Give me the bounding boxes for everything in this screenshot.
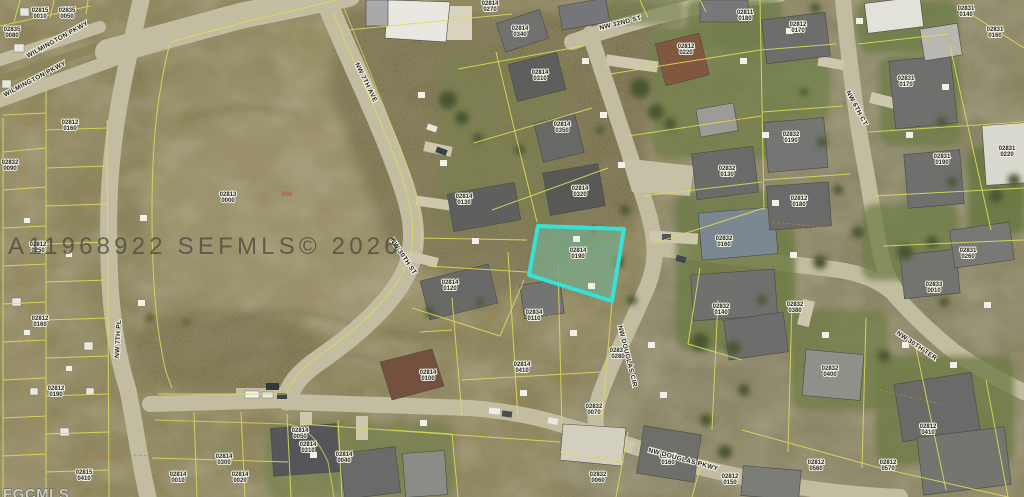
svg-text:0140: 0140: [714, 310, 728, 316]
svg-text:0260: 0260: [961, 254, 975, 260]
svg-text:0410: 0410: [515, 368, 529, 374]
svg-text:0050: 0050: [60, 14, 74, 20]
svg-text:0410: 0410: [921, 430, 935, 436]
svg-text:0130: 0130: [457, 200, 471, 206]
svg-text:0380: 0380: [788, 308, 802, 314]
svg-text:0140: 0140: [959, 12, 973, 18]
svg-text:0190: 0190: [935, 160, 949, 166]
svg-text:0190: 0190: [571, 254, 585, 260]
svg-text:0160: 0160: [988, 33, 1002, 39]
svg-text:0130: 0130: [720, 172, 734, 178]
svg-text:0220: 0220: [679, 50, 693, 56]
svg-text:0170: 0170: [899, 82, 913, 88]
svg-text:0000: 0000: [221, 198, 235, 204]
svg-text:0570: 0570: [881, 466, 895, 472]
svg-text:0020: 0020: [233, 478, 247, 484]
svg-text:0110: 0110: [527, 316, 541, 322]
svg-text:0050: 0050: [293, 434, 307, 440]
svg-text:0080: 0080: [5, 33, 19, 39]
svg-text:0190: 0190: [784, 138, 798, 144]
svg-text:0160: 0160: [63, 126, 77, 132]
svg-text:FGCMLS: FGCMLS: [3, 486, 69, 497]
svg-text:0350: 0350: [555, 128, 569, 134]
svg-text:0320: 0320: [573, 192, 587, 198]
svg-text:0270: 0270: [483, 7, 497, 13]
svg-text:0310: 0310: [301, 448, 315, 454]
svg-text:0150: 0150: [723, 480, 737, 486]
svg-text:0180: 0180: [792, 202, 806, 208]
svg-text:0410: 0410: [77, 476, 91, 482]
svg-text:0300: 0300: [217, 460, 231, 466]
svg-text:0090: 0090: [3, 166, 17, 172]
svg-text:0160: 0160: [661, 460, 675, 466]
svg-text:0070: 0070: [587, 410, 601, 416]
svg-text:0160: 0160: [33, 322, 47, 328]
svg-text:0010: 0010: [927, 288, 941, 294]
svg-text:0560: 0560: [809, 466, 823, 472]
svg-text:0310: 0310: [533, 76, 547, 82]
svg-text:A11968922 SEFMLS© 2026: A11968922 SEFMLS© 2026: [8, 233, 402, 260]
svg-text:0120: 0120: [443, 286, 457, 292]
svg-text:0340: 0340: [513, 32, 527, 38]
svg-text:0010: 0010: [33, 14, 47, 20]
svg-text:0220: 0220: [1000, 152, 1014, 158]
svg-text:0180: 0180: [738, 16, 752, 22]
svg-text:0010: 0010: [171, 478, 185, 484]
svg-text:0160: 0160: [717, 242, 731, 248]
svg-text:0100: 0100: [421, 376, 435, 382]
svg-text:500: 500: [282, 192, 293, 198]
svg-text:0190: 0190: [49, 392, 63, 398]
svg-text:0040: 0040: [337, 458, 351, 464]
svg-text:0060: 0060: [591, 478, 605, 484]
svg-text:0400: 0400: [823, 372, 837, 378]
svg-text:0170: 0170: [791, 28, 805, 34]
